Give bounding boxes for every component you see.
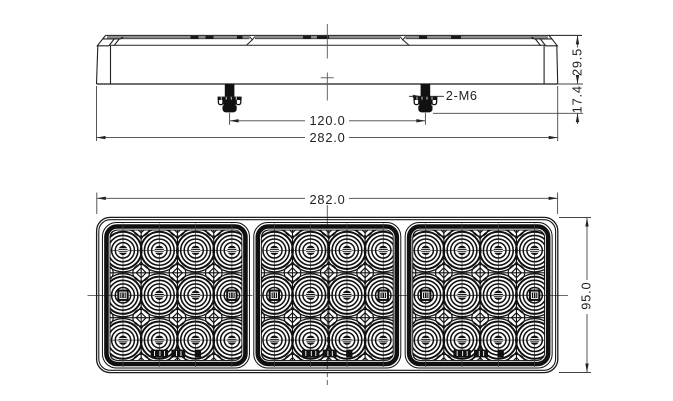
svg-text:17.4: 17.4 (570, 85, 585, 113)
svg-text:29.5: 29.5 (570, 48, 585, 76)
svg-text:120.0: 120.0 (309, 113, 345, 128)
svg-text:95.0: 95.0 (578, 282, 593, 310)
svg-text:282.0: 282.0 (309, 192, 345, 207)
svg-text:2-M6: 2-M6 (446, 88, 478, 103)
svg-text:282.0: 282.0 (309, 130, 345, 145)
